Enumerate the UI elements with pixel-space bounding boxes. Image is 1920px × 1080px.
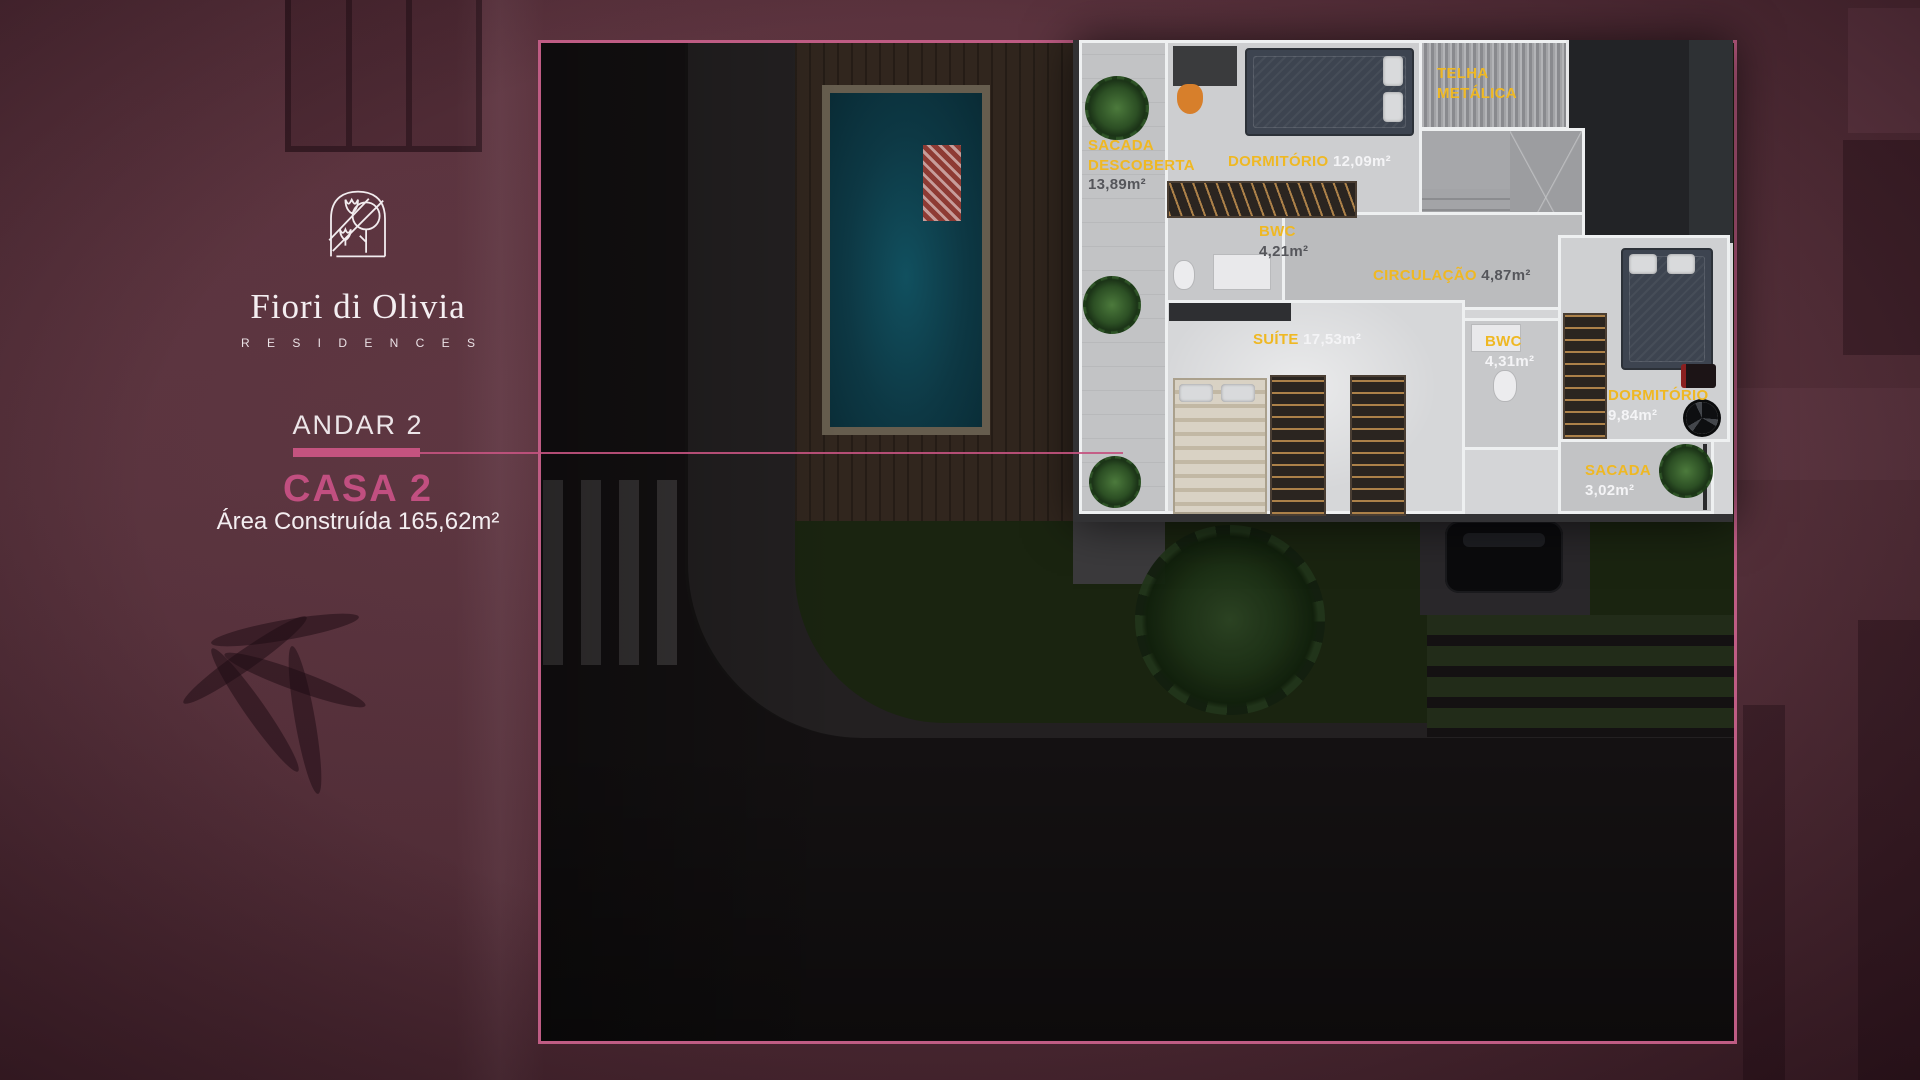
pool-float-towel xyxy=(923,145,961,221)
floor-underline-bar xyxy=(293,448,420,457)
room-area-value: 12,09m² xyxy=(1333,153,1391,170)
room-area-value: 13,89m² xyxy=(1088,175,1195,195)
floor-plan: SACADA DESCOBERTA 13,89m² DORMITÓRIO 12,… xyxy=(1073,40,1733,522)
brand-block: Fiori di Olivia R E S I D E N C E S xyxy=(178,186,538,350)
room-area-value: 9,84m² xyxy=(1608,406,1709,426)
roof-dark-section xyxy=(1566,40,1733,243)
background-light-streak xyxy=(455,0,545,1080)
olive-tree-arch-logo-icon xyxy=(322,186,394,262)
palm-frond xyxy=(209,607,360,653)
roof-label-telha-metalica: TELHA METÁLICA xyxy=(1437,64,1517,103)
wardrobe-suite xyxy=(1350,375,1406,516)
background-building-silhouette xyxy=(1843,140,1920,355)
hedge-rows xyxy=(1427,615,1737,737)
room-label-sacada-descoberta: SACADA DESCOBERTA 13,89m² xyxy=(1088,136,1195,195)
palm-frond xyxy=(282,644,328,795)
balcony-plant xyxy=(1659,444,1713,498)
garden-palm-tree xyxy=(1135,525,1325,715)
room-circulacao xyxy=(1282,212,1585,310)
toilet xyxy=(1493,370,1517,402)
room-label-sacada: SACADA 3,02m² xyxy=(1585,461,1651,500)
wardrobe-suite xyxy=(1270,375,1326,516)
pillow xyxy=(1221,384,1255,402)
background-building-ledge xyxy=(1737,388,1920,480)
wardrobe-dormitorio-1 xyxy=(1167,181,1357,218)
room-label-dormitorio-2: DORMITÓRIO 9,84m² xyxy=(1608,386,1709,425)
window-mullion xyxy=(346,0,352,146)
background-palm-silhouette xyxy=(150,560,410,800)
background-window-silhouette xyxy=(285,0,482,152)
room-label-bwc-2: BWC 4,31m² xyxy=(1485,332,1534,371)
pillow xyxy=(1179,384,1213,402)
crosswalk xyxy=(543,480,695,665)
room-label-dormitorio-1: DORMITÓRIO 12,09m² xyxy=(1228,152,1391,172)
room-area-value: 4,87m² xyxy=(1481,267,1530,284)
brand-subtitle: R E S I D E N C E S xyxy=(178,336,538,350)
built-area-label: Área Construída 165,62m² xyxy=(178,508,538,536)
room-area-value: 17,53m² xyxy=(1303,331,1361,348)
wardrobe-dormitorio-2 xyxy=(1563,313,1607,439)
gaming-chair xyxy=(1681,364,1716,388)
desk xyxy=(1173,46,1237,86)
room-label-circulacao: CIRCULAÇÃO 4,87m² xyxy=(1373,266,1531,286)
floor-label: ANDAR 2 xyxy=(178,410,538,441)
pillow xyxy=(1667,254,1695,274)
brand-name: Fiori di Olivia xyxy=(178,287,538,327)
room-area-value: 4,21m² xyxy=(1259,242,1308,262)
swimming-pool xyxy=(822,85,990,435)
tv-console xyxy=(1169,303,1291,321)
background-building-glow xyxy=(1848,8,1920,133)
background-building-silhouette xyxy=(1743,705,1785,1080)
pillow xyxy=(1629,254,1657,274)
room-area-value: 4,31m² xyxy=(1485,352,1534,372)
roof-edge xyxy=(1689,40,1733,243)
presentation-page: Fiori di Olivia R E S I D E N C E S ANDA… xyxy=(0,0,1920,1080)
annotation-line xyxy=(420,452,1123,454)
room-area-value: 3,02m² xyxy=(1585,481,1651,501)
balcony-plant xyxy=(1083,276,1141,334)
parked-car xyxy=(1445,521,1563,593)
desk-chair xyxy=(1177,84,1203,114)
pillow xyxy=(1383,92,1403,122)
pillow xyxy=(1383,56,1403,86)
background-building-silhouette xyxy=(1858,620,1920,1080)
toilet xyxy=(1173,260,1195,290)
balcony-plant xyxy=(1089,456,1141,508)
pool-water xyxy=(830,93,982,427)
balcony-plant xyxy=(1085,76,1149,140)
window-mullion xyxy=(406,0,412,146)
room-label-bwc-1: BWC 4,21m² xyxy=(1259,222,1308,261)
room-label-suite: SUÍTE 17,53m² xyxy=(1253,330,1361,350)
unit-label: CASA 2 xyxy=(178,468,538,511)
